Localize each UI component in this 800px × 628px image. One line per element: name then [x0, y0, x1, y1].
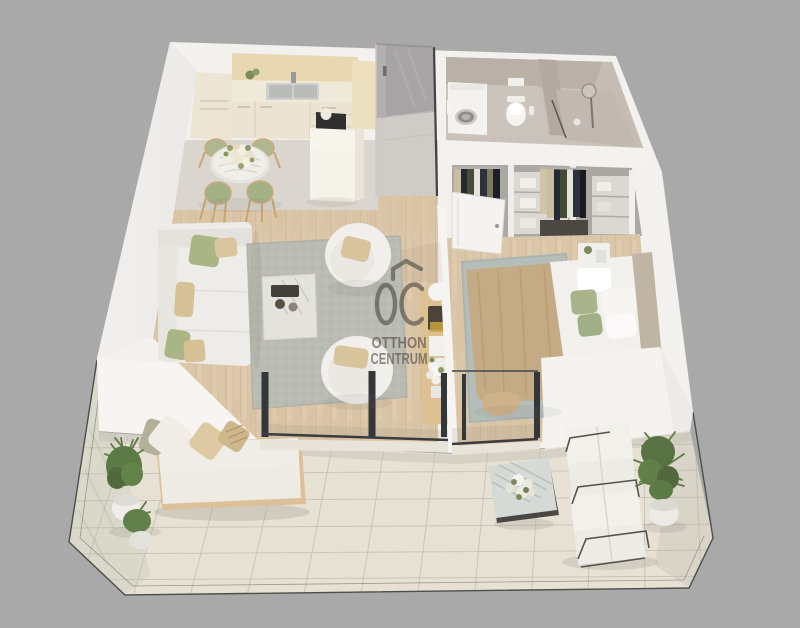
svg-text:OTTHON: OTTHON	[372, 335, 427, 352]
svg-text:CENTRUM: CENTRUM	[371, 351, 428, 368]
